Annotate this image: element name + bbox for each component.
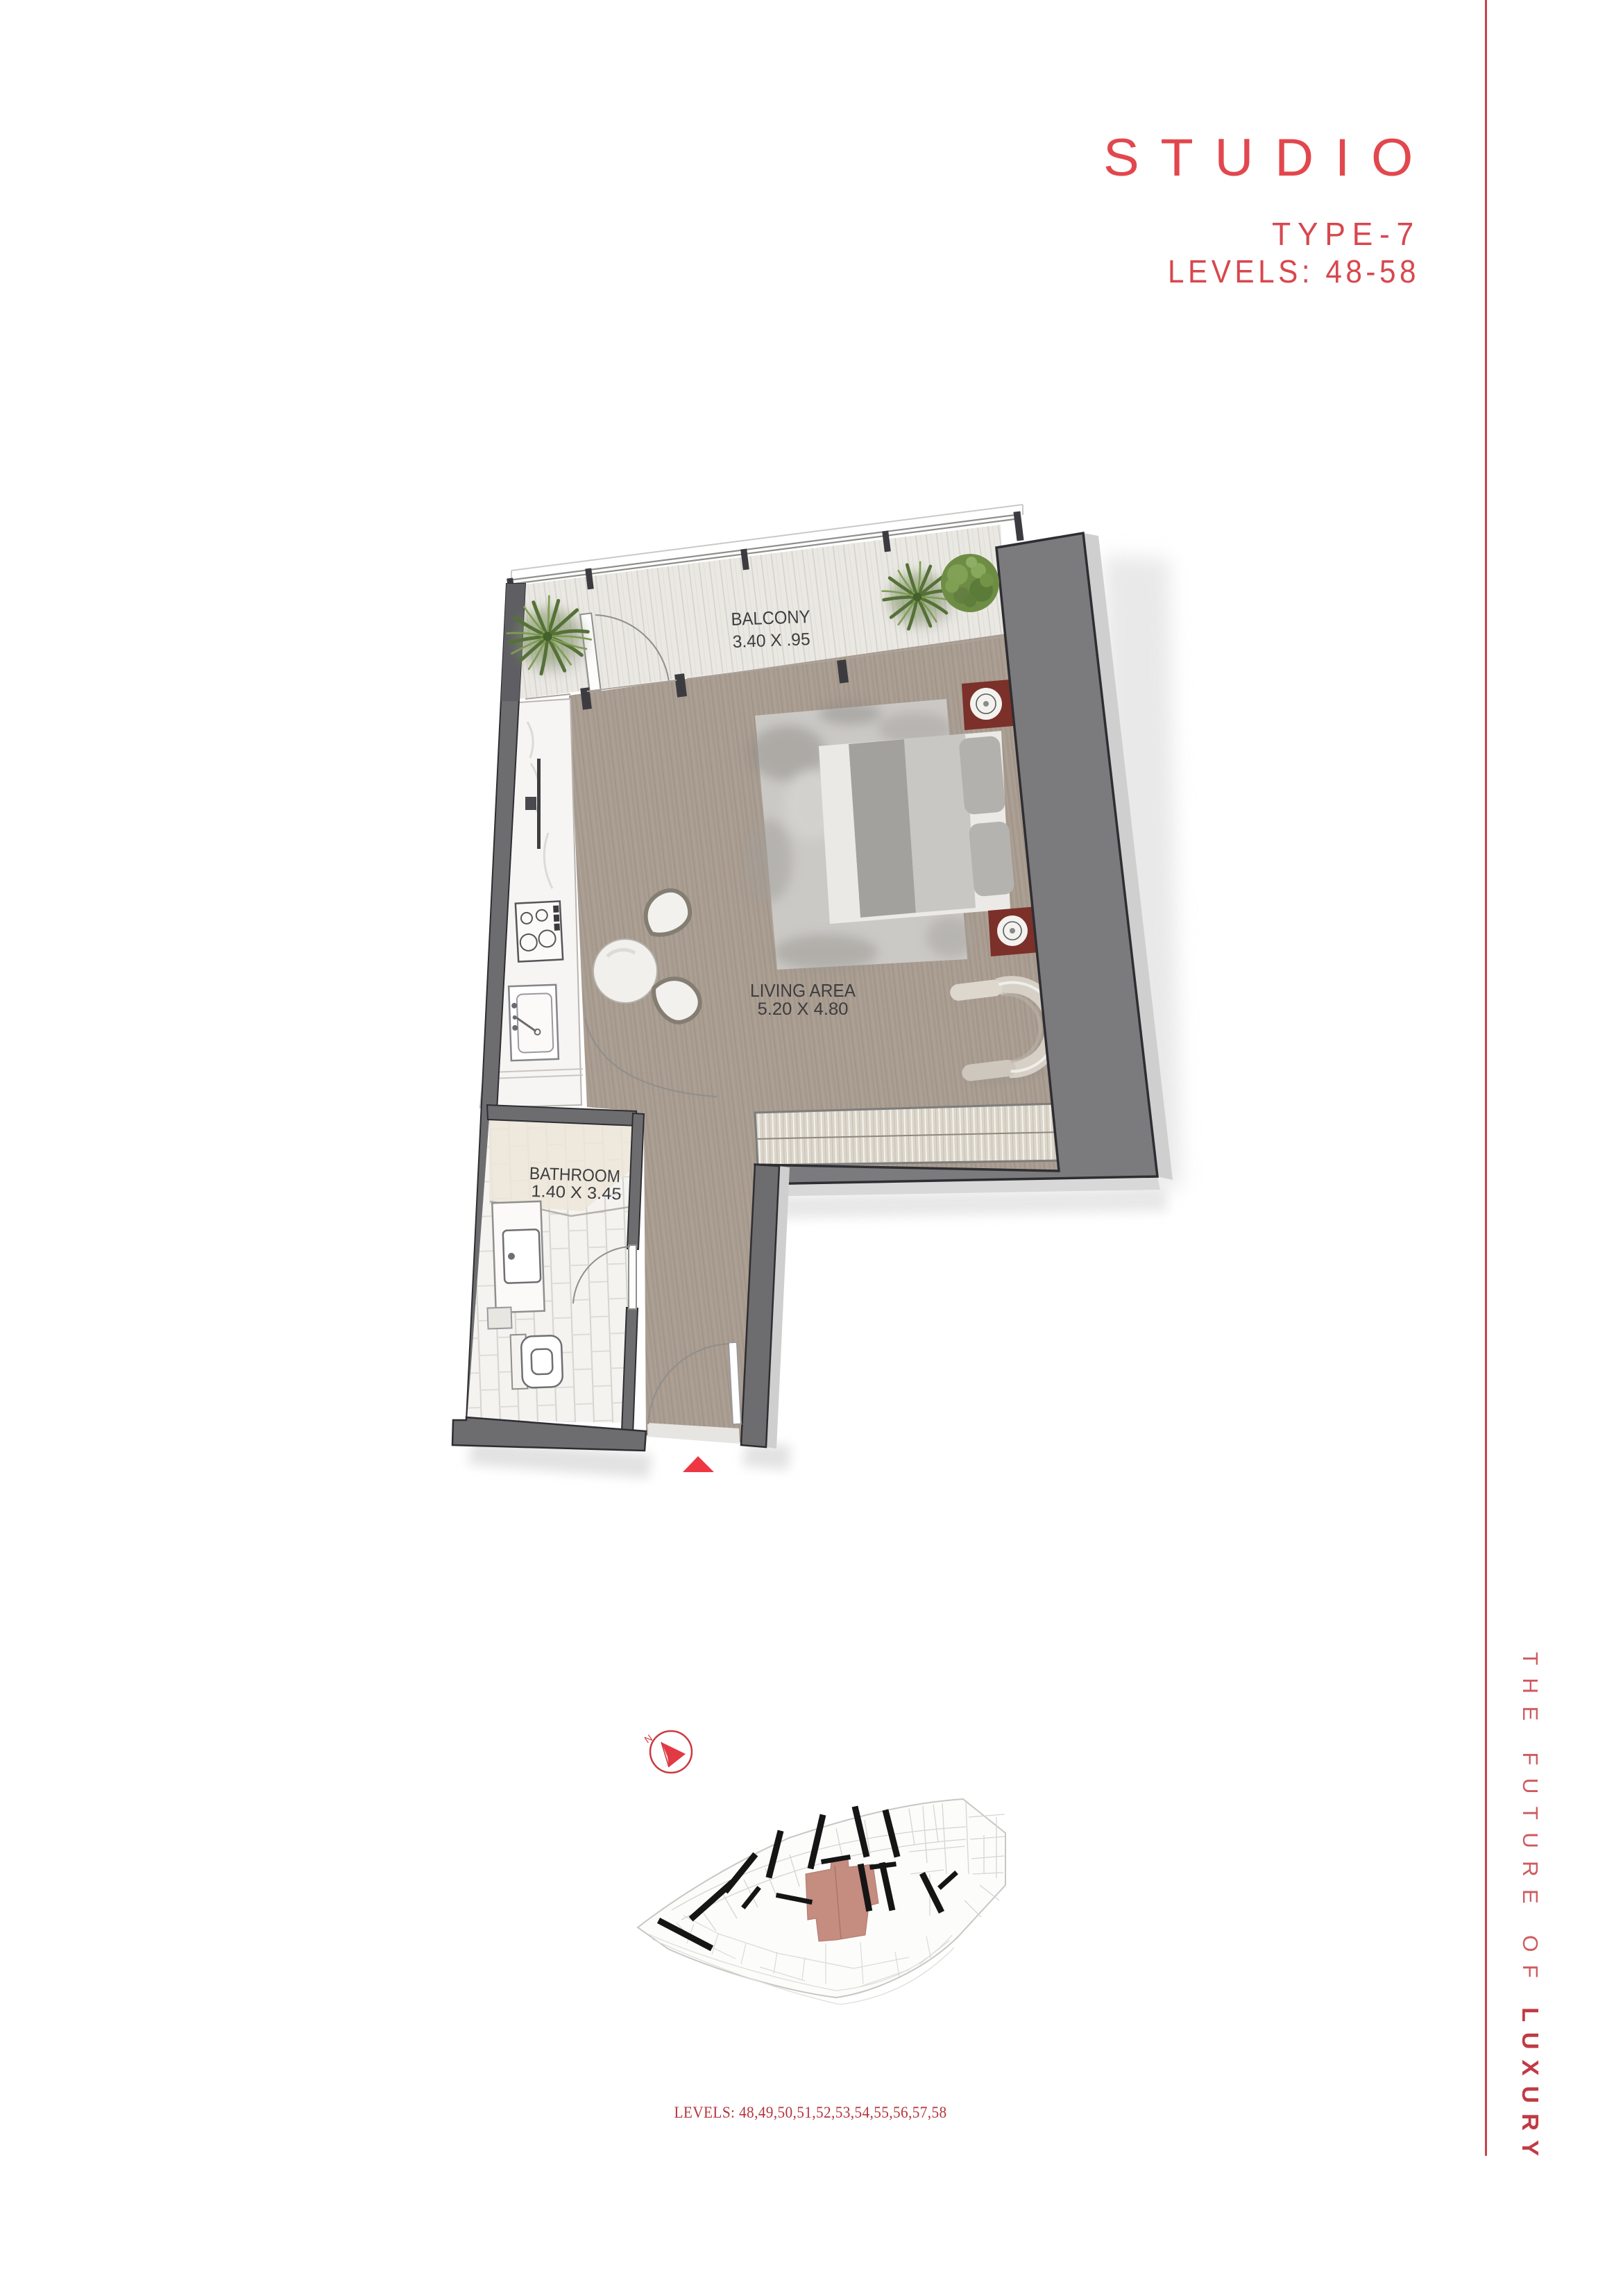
svg-text:3.40 X .95: 3.40 X .95 (732, 630, 810, 652)
svg-text:STUDIO: STUDIO (1103, 128, 1434, 187)
svg-text:LIVING AREA: LIVING AREA (750, 980, 856, 1001)
svg-text:BALCONY: BALCONY (731, 606, 810, 630)
svg-text:1.40 X 3.45: 1.40 X 3.45 (531, 1182, 622, 1204)
svg-text:LEVELS: 48-58: LEVELS: 48-58 (1168, 253, 1420, 289)
svg-text:LUXURY: LUXURY (1518, 2007, 1543, 2166)
svg-text:THE FUTURE OF: THE FUTURE OF (1518, 1652, 1543, 1991)
svg-text:LEVELS: 48,49,50,51,52,53,54,5: LEVELS: 48,49,50,51,52,53,54,55,56,57,58 (674, 2104, 947, 2122)
svg-text:TYPE-7: TYPE-7 (1272, 216, 1420, 252)
svg-text:5.20 X 4.80: 5.20 X 4.80 (758, 999, 849, 1019)
